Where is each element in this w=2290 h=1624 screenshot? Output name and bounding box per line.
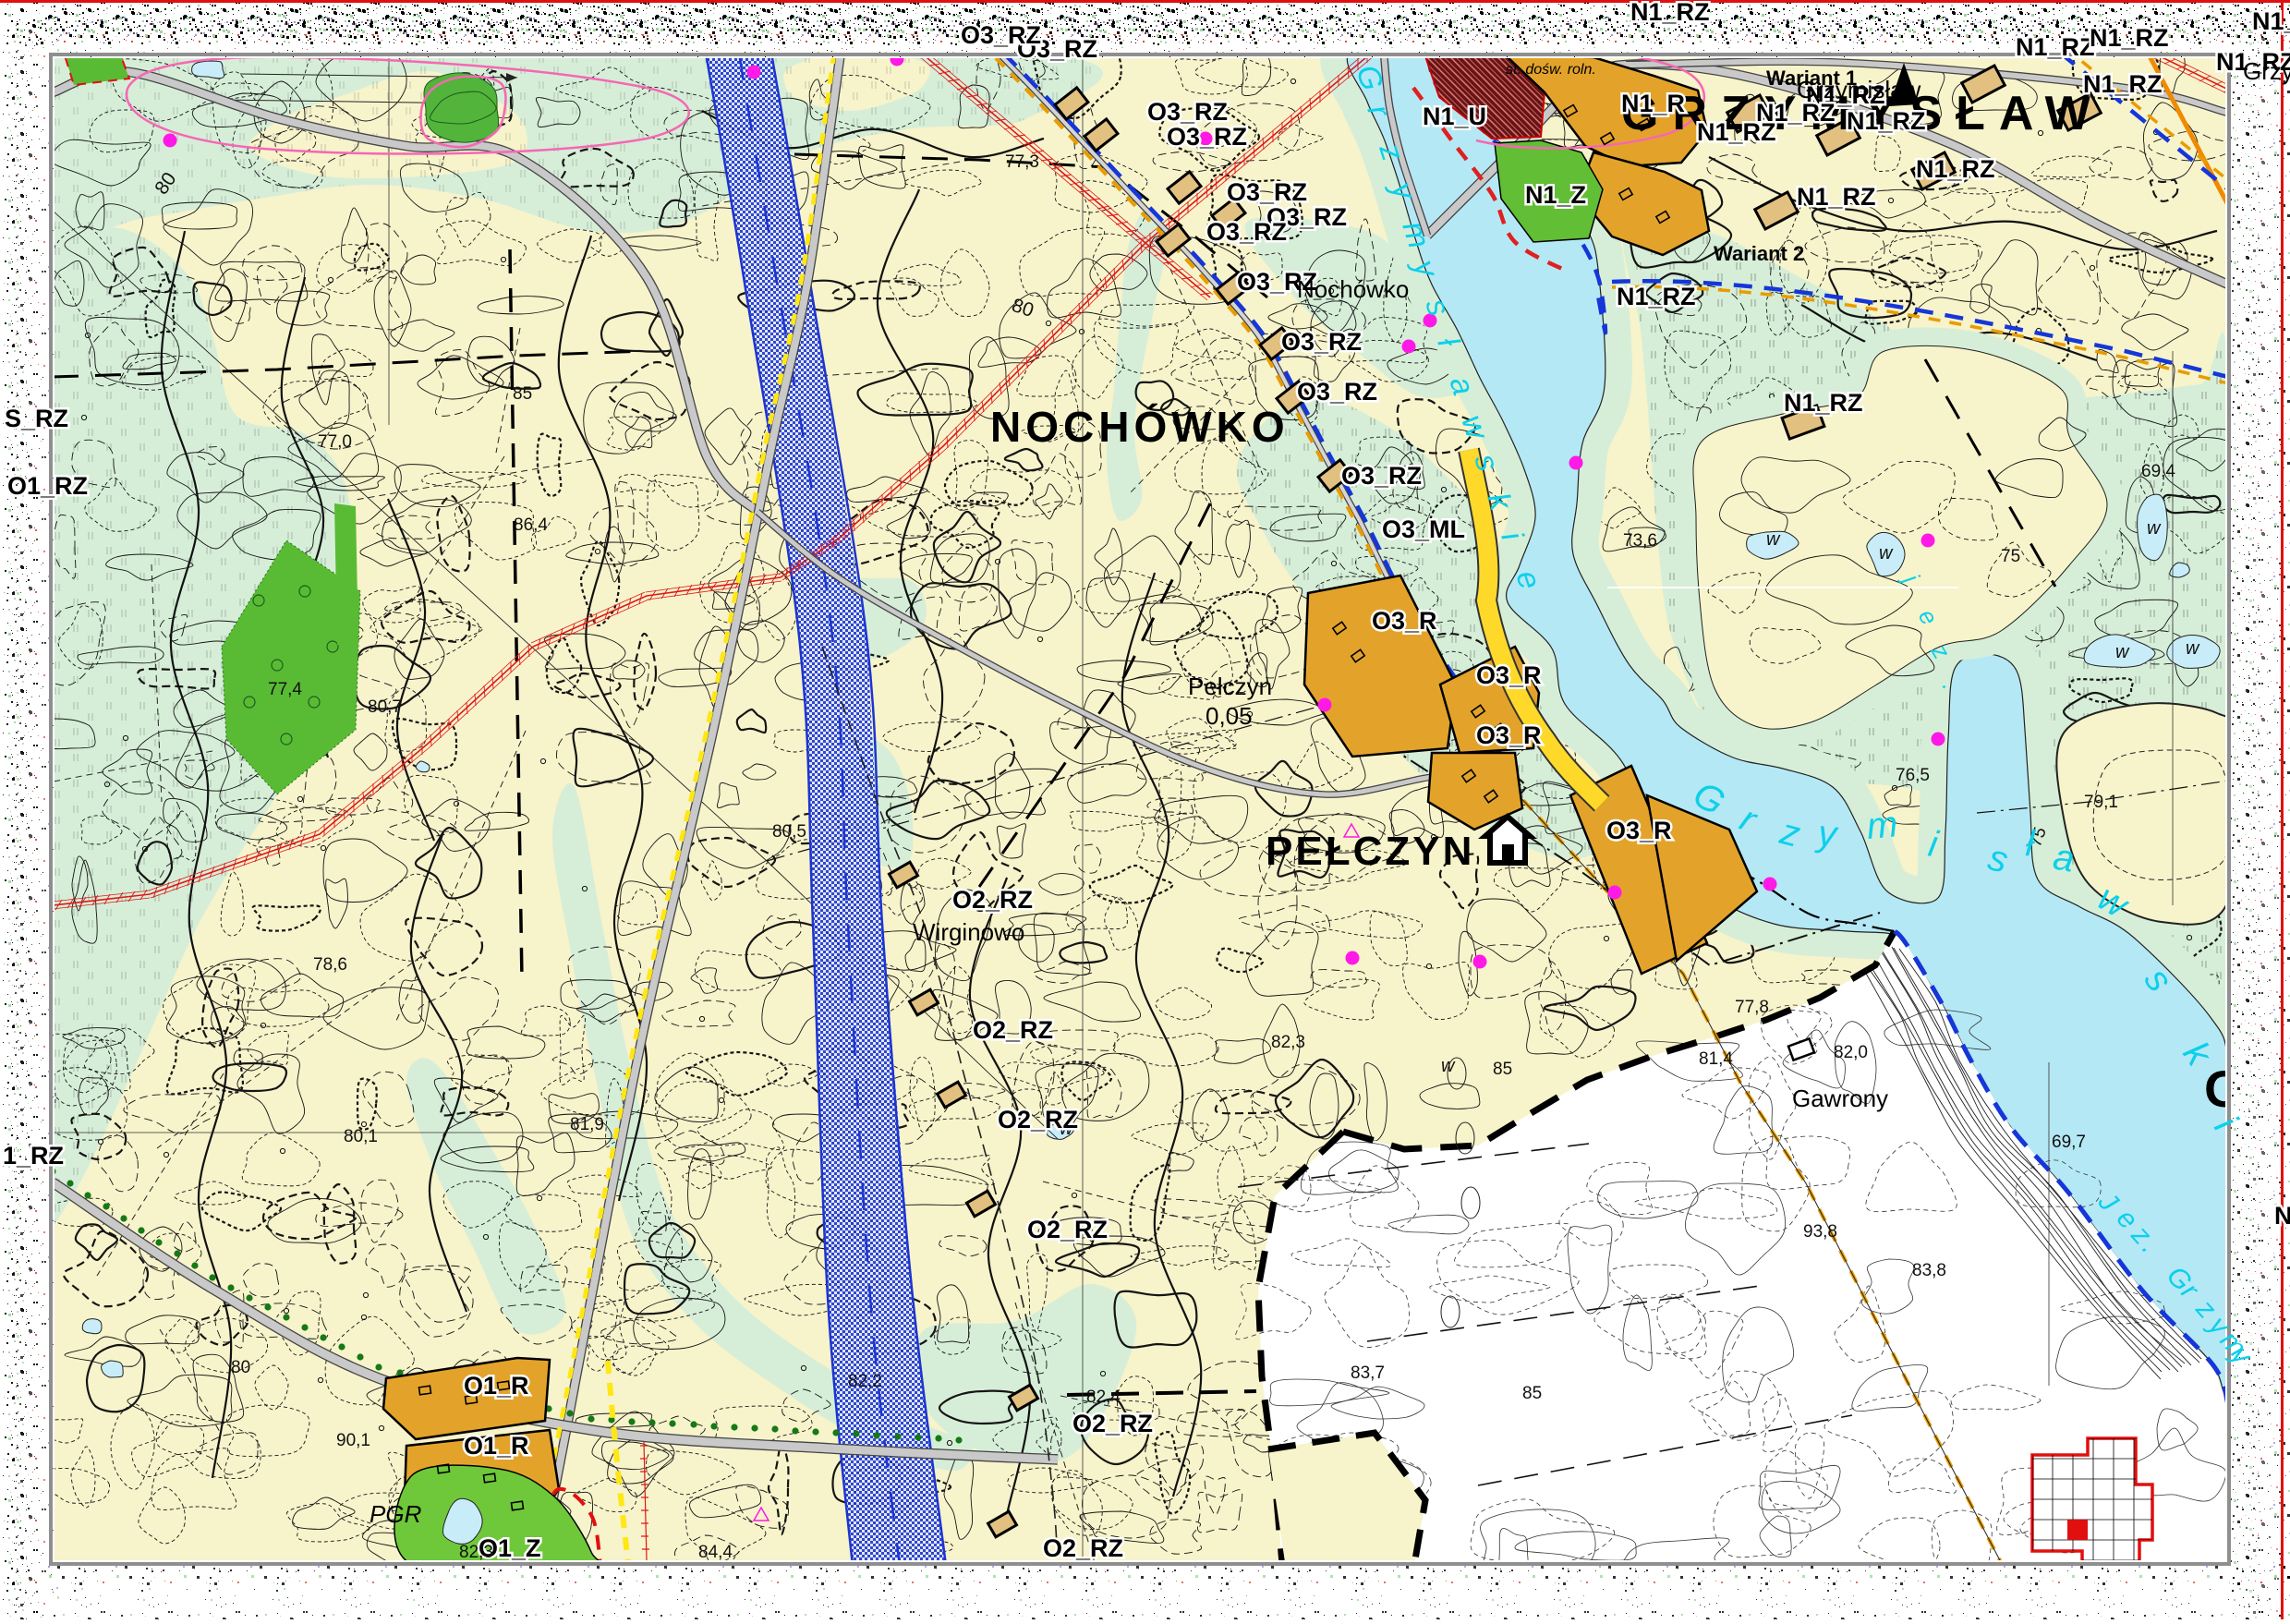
svg-text:N1_RZ: N1_RZ [1784, 389, 1863, 417]
svg-text:O3_RZ: O3_RZ [1206, 218, 1287, 246]
svg-text:w: w [2186, 638, 2200, 659]
svg-text:N: N [2274, 1202, 2290, 1230]
svg-text:69,4: 69,4 [2141, 462, 2175, 481]
svg-text:0,05: 0,05 [1206, 702, 1253, 730]
svg-text:N1_RZ: N1_RZ [2090, 24, 2169, 52]
svg-text:85: 85 [1522, 1384, 1542, 1403]
svg-text:O2_RZ: O2_RZ [998, 1106, 1078, 1133]
svg-text:w: w [2115, 642, 2130, 662]
svg-text:82,2: 82,2 [848, 1372, 882, 1391]
svg-text:PEŁCZYN: PEŁCZYN [1266, 829, 1474, 874]
svg-text:86,4: 86,4 [514, 515, 548, 535]
svg-text:PGR: PGR [370, 1500, 421, 1528]
svg-text:O2_RZ: O2_RZ [1072, 1410, 1153, 1437]
svg-text:80,5: 80,5 [772, 822, 806, 842]
svg-text:83,7: 83,7 [1351, 1363, 1385, 1383]
svg-text:80,1: 80,1 [344, 1127, 378, 1146]
svg-text:83,8: 83,8 [1912, 1261, 1946, 1280]
svg-text:O3_RZ: O3_RZ [1281, 328, 1362, 356]
svg-text:O3_RZ: O3_RZ [961, 21, 1041, 49]
svg-text:O1_R: O1_R [464, 1432, 529, 1460]
svg-text:81,9: 81,9 [570, 1115, 604, 1134]
svg-text:84,4: 84,4 [698, 1543, 733, 1562]
svg-text:O3_RZ: O3_RZ [1227, 178, 1307, 206]
svg-text:N1_RZ: N1_RZ [1697, 118, 1776, 146]
svg-text:S_RZ: S_RZ [5, 405, 68, 432]
svg-text:Gawrony: Gawrony [1792, 1085, 1888, 1112]
svg-text:O2_RZ: O2_RZ [952, 886, 1033, 914]
svg-text:N1_RZ: N1_RZ [1617, 283, 1696, 310]
svg-text:O1_RZ: O1_RZ [7, 472, 88, 500]
svg-text:O3_R: O3_R [1476, 721, 1542, 749]
svg-text:82,4: 82,4 [1086, 1388, 1121, 1407]
svg-text:O2_RZ: O2_RZ [973, 1016, 1053, 1044]
svg-text:69,7: 69,7 [2052, 1133, 2086, 1152]
svg-text:Wirginowo: Wirginowo [913, 918, 1024, 946]
svg-text:82,3: 82,3 [1271, 1033, 1305, 1052]
svg-text:Pełczyn: Pełczyn [1188, 673, 1272, 700]
svg-text:76,5: 76,5 [1896, 766, 1930, 785]
svg-text:Grzym: Grzym [2243, 57, 2290, 85]
svg-text:O2_RZ: O2_RZ [1043, 1534, 1123, 1562]
svg-text:80,7: 80,7 [368, 697, 402, 717]
svg-text:N1_RZ: N1_RZ [2016, 33, 2095, 61]
svg-text:Nochówko: Nochówko [1297, 275, 1409, 303]
svg-text:90,1: 90,1 [336, 1431, 370, 1450]
svg-text:N1_RZ: N1_RZ [1847, 107, 1926, 135]
svg-text:75: 75 [2001, 547, 2020, 566]
svg-text:78,6: 78,6 [313, 955, 347, 975]
svg-text:77,8: 77,8 [1735, 998, 1769, 1017]
svg-text:O1_R: O1_R [464, 1372, 529, 1400]
svg-text:Wariant 1: Wariant 1 [1766, 67, 1857, 90]
svg-text:73,6: 73,6 [1623, 531, 1657, 551]
svg-text:N1_RZ: N1_RZ [1797, 183, 1876, 211]
svg-text:w: w [1879, 543, 1894, 564]
svg-text:O2_RZ: O2_RZ [1027, 1216, 1108, 1243]
svg-text:N1_RZ: N1_RZ [1916, 155, 1995, 183]
svg-text:N1_RZ: N1_RZ [1630, 0, 1710, 26]
svg-text:77,3: 77,3 [1005, 152, 1039, 172]
svg-text:O3_RZ: O3_RZ [1147, 98, 1228, 126]
svg-text:82,3: 82,3 [459, 1543, 493, 1562]
svg-text:93,8: 93,8 [1803, 1222, 1837, 1242]
svg-text:w: w [2147, 518, 2162, 539]
svg-text:N1_Z: N1_Z [1525, 181, 1586, 209]
svg-text:Wariant 2: Wariant 2 [1714, 242, 1804, 265]
svg-text:O3_R: O3_R [1372, 607, 1437, 635]
svg-text:N1_U: N1_U [1423, 103, 1486, 130]
svg-text:O3_RZ: O3_RZ [1341, 462, 1422, 490]
svg-text:81,4: 81,4 [1699, 1049, 1733, 1069]
svg-text:O3_RZ: O3_RZ [1167, 123, 1247, 151]
svg-text:80: 80 [231, 1358, 250, 1377]
svg-text:NOCHÓWKO: NOCHÓWKO [990, 403, 1290, 451]
svg-text:79,1: 79,1 [2084, 793, 2118, 812]
svg-text:77,4: 77,4 [268, 680, 302, 699]
svg-text:O3_R: O3_R [1476, 661, 1542, 689]
svg-text:O3_RZ: O3_RZ [1297, 378, 1377, 406]
svg-text:82,0: 82,0 [1834, 1043, 1868, 1062]
svg-text:st. dośw. roln.: st. dośw. roln. [1506, 62, 1596, 78]
svg-text:N1_R: N1_R [1621, 90, 1685, 117]
svg-text:85: 85 [1493, 1060, 1512, 1079]
svg-text:85: 85 [513, 384, 532, 404]
svg-text:N1_RZ: N1_RZ [2252, 7, 2290, 35]
svg-text:77,0: 77,0 [318, 432, 352, 452]
svg-text:m: m [1865, 804, 1899, 847]
svg-text:w: w [1766, 529, 1781, 550]
svg-text:O3_R: O3_R [1606, 817, 1672, 844]
svg-text:1_RZ: 1_RZ [3, 1142, 64, 1170]
svg-text:O3_ML: O3_ML [1382, 515, 1465, 543]
svg-text:N1_RZ: N1_RZ [2083, 70, 2163, 98]
